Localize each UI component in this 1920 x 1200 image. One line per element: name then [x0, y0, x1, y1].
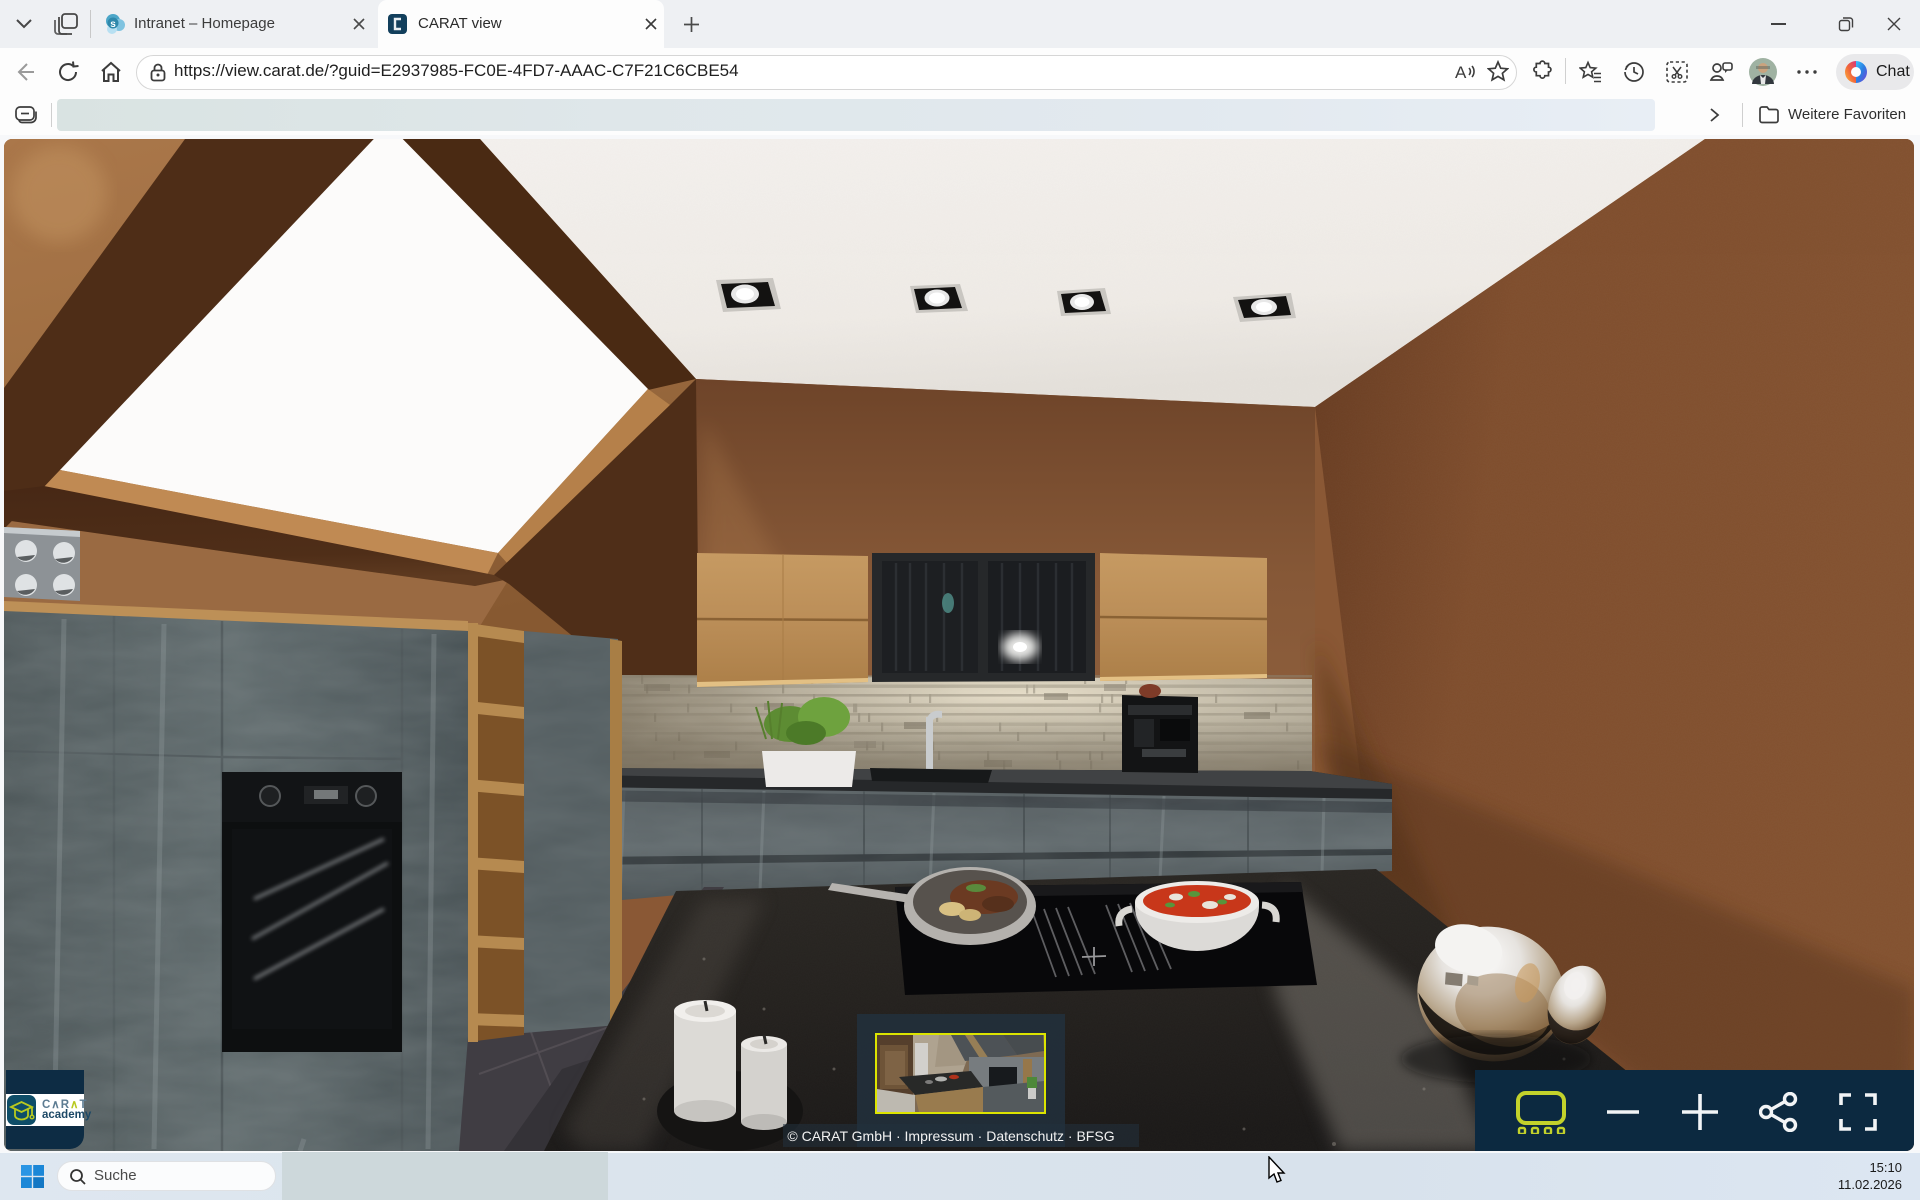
svg-text:s: s: [110, 19, 116, 30]
svg-text:A: A: [1455, 63, 1467, 82]
